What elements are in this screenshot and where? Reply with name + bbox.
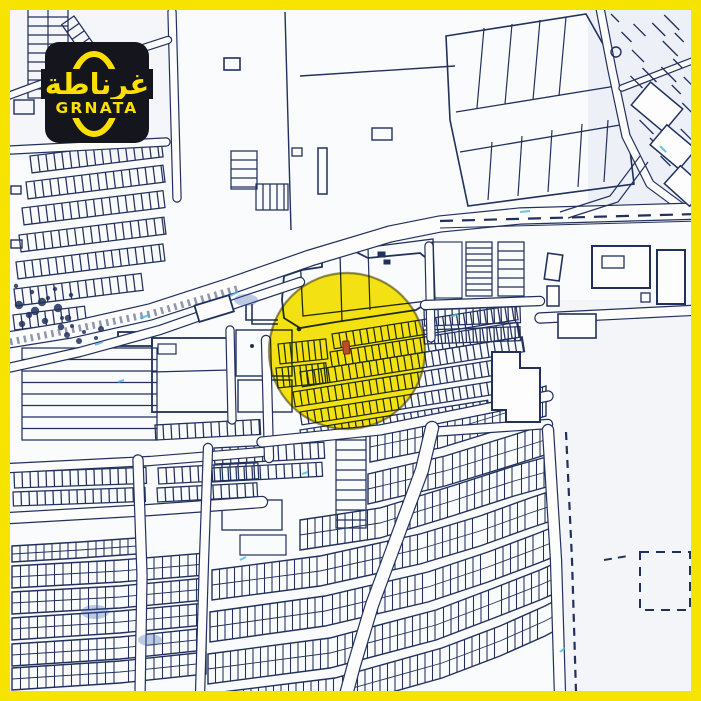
location-marker xyxy=(343,341,350,354)
grnata-logo: غرناطة GRNATA xyxy=(45,42,149,143)
logo-arabic-text: غرناطة xyxy=(41,69,154,99)
logo-latin-text: GRNATA xyxy=(53,99,142,118)
